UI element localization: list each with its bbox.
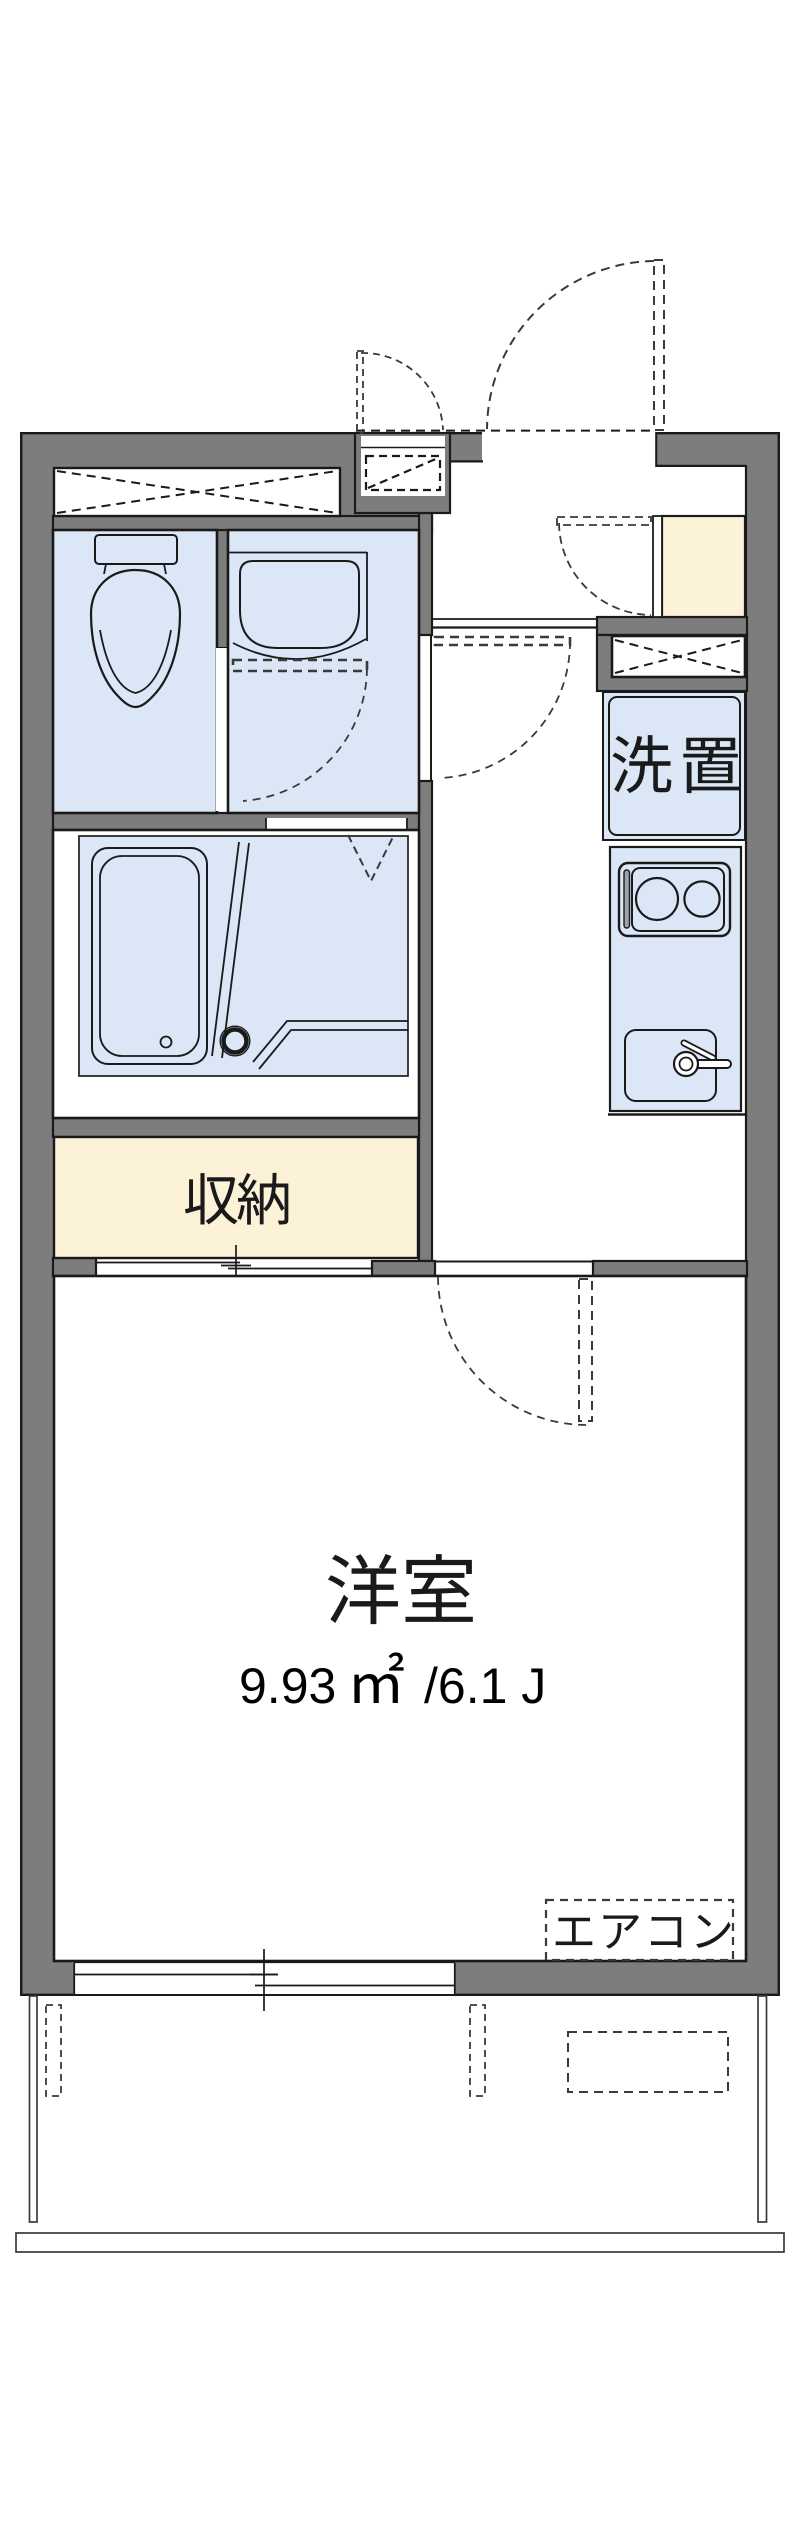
svg-text:9.93: 9.93 [239,1658,336,1714]
svg-text:/6.1 J: /6.1 J [424,1658,546,1714]
